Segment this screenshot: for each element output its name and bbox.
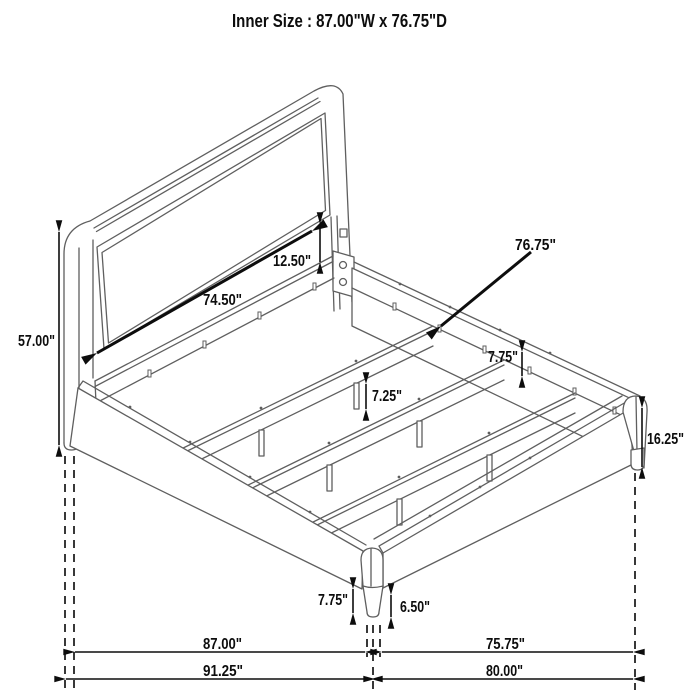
- slat-hook: [203, 341, 206, 348]
- front-leg: [361, 548, 383, 617]
- dim-floor-depth-overall: 80.00": [375, 663, 633, 680]
- dim-floor-width-inner: 87.00": [75, 636, 365, 653]
- dim-inner-depth-label: 76.75": [515, 237, 556, 254]
- headboard-panel: [97, 113, 330, 349]
- dim-headboard-width-label: 74.50": [203, 292, 242, 309]
- bolt-dot: [449, 306, 452, 309]
- dim-support-leg-label: 7.25": [372, 388, 402, 405]
- dim-front-leg-label: 7.75": [318, 592, 348, 609]
- support-leg: [259, 430, 264, 456]
- dim-front-leg-taper: 6.50": [391, 595, 430, 617]
- left-side-rail: [70, 381, 366, 589]
- bolt-dot: [429, 515, 432, 518]
- dim-headboard-height: 57.00": [18, 232, 59, 445]
- dim-floor-depth-overall-label: 80.00": [486, 663, 523, 680]
- bed-dimension-diagram: Inner Size : 87.00"W x 76.75"D: [0, 0, 700, 700]
- dim-rail-height: 16.25": [642, 408, 684, 467]
- bolt-dot: [529, 457, 532, 460]
- bolt-dot: [260, 407, 263, 410]
- dim-inner-depth: 76.75": [441, 237, 556, 326]
- left-rail-face: [70, 388, 363, 589]
- bolt-dot: [398, 476, 401, 479]
- dim-front-leg-taper-label: 6.50": [400, 599, 430, 616]
- bolt-dot: [418, 398, 421, 401]
- bolt-dot: [488, 432, 491, 435]
- bolt-dot: [129, 406, 132, 409]
- dim-rail-height-label: 16.25": [647, 431, 684, 448]
- dim-slat-drop-label: 7.75": [488, 349, 518, 366]
- dim-floor-width-overall: 91.25": [66, 663, 371, 680]
- bolt-dot: [399, 283, 402, 286]
- bolt-dot: [189, 441, 192, 444]
- dim-floor-width-overall-label: 91.25": [203, 663, 243, 680]
- dim-headboard-height-label: 57.00": [18, 333, 55, 350]
- slat-hook: [528, 367, 531, 374]
- dim-floor-width-inner-label: 87.00": [203, 636, 242, 653]
- support-leg: [417, 421, 422, 447]
- slat-hook: [258, 312, 261, 319]
- bolt-dot: [309, 511, 312, 514]
- slat-hook: [148, 370, 151, 377]
- slat-hook: [313, 283, 316, 290]
- dim-support-leg: 7.25": [366, 384, 402, 409]
- bolt-dot: [328, 442, 331, 445]
- bolt-dot: [499, 329, 502, 332]
- bolt-dot: [249, 476, 252, 479]
- page-title: Inner Size : 87.00"W x 76.75"D: [232, 11, 447, 31]
- support-leg: [487, 455, 492, 481]
- slat-hook: [483, 346, 486, 353]
- bed-dimension-diagram-page: Inner Size : 87.00"W x 76.75"D: [0, 0, 700, 700]
- front-leg-shape: [361, 548, 383, 617]
- dim-floor-depth-inner-label: 75.75": [486, 636, 525, 653]
- post-slot: [340, 229, 347, 237]
- bolt-dot: [355, 360, 358, 363]
- slat-hook: [393, 303, 396, 310]
- bolt-dot: [549, 352, 552, 355]
- dim-floor-depth-inner: 75.75": [382, 636, 633, 653]
- support-leg: [397, 499, 402, 525]
- bolt-dot: [479, 486, 482, 489]
- slat-hook: [438, 325, 441, 332]
- dim-front-leg: 7.75": [318, 589, 353, 613]
- support-leg: [354, 383, 359, 409]
- rail-bracket: [333, 251, 354, 297]
- dim-panel-gap-label: 12.50": [273, 253, 311, 270]
- support-leg: [327, 465, 332, 491]
